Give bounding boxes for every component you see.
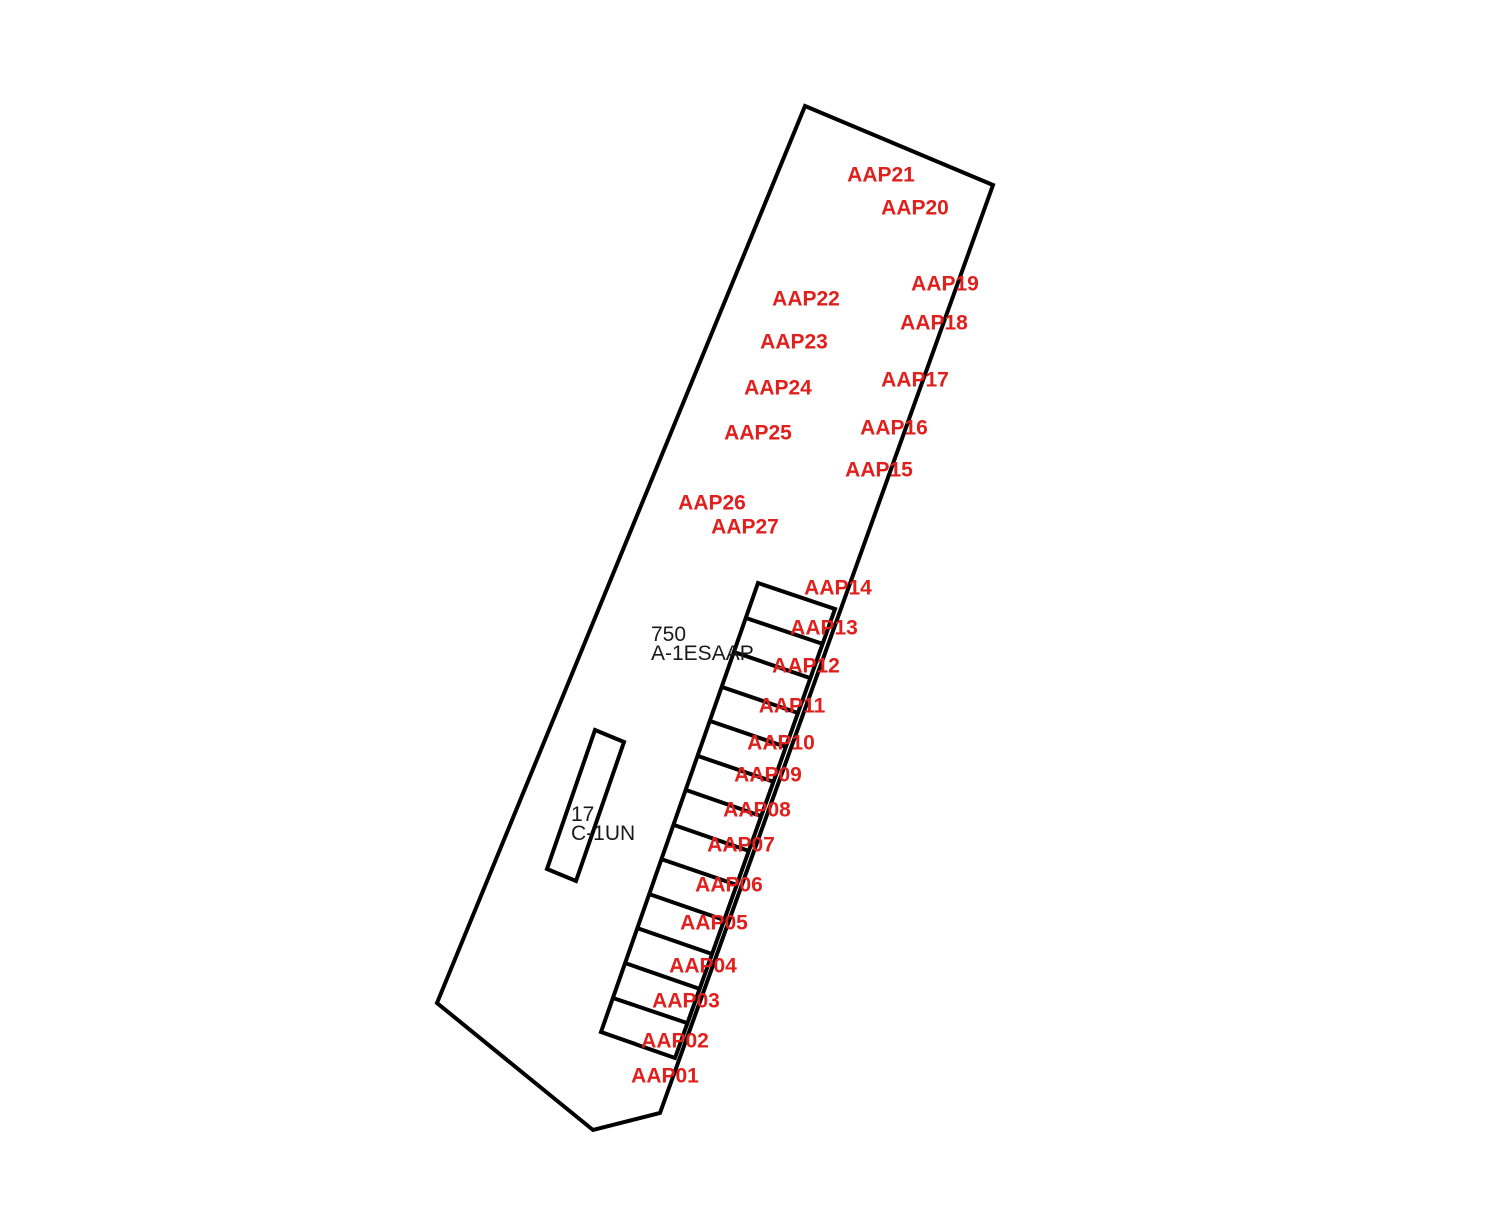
stall-label-aap27: AAP27 — [711, 517, 779, 538]
stall-label-aap07: AAP07 — [707, 835, 775, 856]
stall-label-aap15: AAP15 — [845, 460, 913, 481]
stall-label-aap03: AAP03 — [652, 991, 720, 1012]
stall-label-aap01: AAP01 — [631, 1066, 699, 1087]
stall-label-aap17: AAP17 — [881, 370, 949, 391]
stall-label-aap21: AAP21 — [847, 165, 915, 186]
stall-label-aap24: AAP24 — [744, 378, 812, 399]
stall-label-aap19: AAP19 — [911, 274, 979, 295]
stall-label-aap02: AAP02 — [641, 1031, 709, 1052]
stall-label-aap18: AAP18 — [900, 313, 968, 334]
stall-label-aap09: AAP09 — [734, 765, 802, 786]
parcel-label-750: 750 A-1ESAAP — [651, 625, 754, 663]
stall-label-aap13: AAP13 — [790, 618, 858, 639]
stall-label-aap11: AAP11 — [759, 696, 826, 717]
stall-label-aap14: AAP14 — [804, 578, 872, 599]
parcel-label-17: 17 C-1UN — [571, 805, 635, 843]
stall-label-aap06: AAP06 — [695, 875, 763, 896]
stall-label-aap08: AAP08 — [723, 800, 791, 821]
stall-label-aap26: AAP26 — [678, 493, 746, 514]
stall-label-aap10: AAP10 — [747, 733, 815, 754]
parcel-code: C-1UN — [571, 824, 635, 843]
stall-label-aap16: AAP16 — [860, 418, 928, 439]
stall-label-aap22: AAP22 — [772, 289, 840, 310]
stall-label-aap20: AAP20 — [881, 198, 949, 219]
stall-label-aap04: AAP04 — [669, 956, 737, 977]
site-plan-drawing — [0, 0, 1500, 1218]
stall-label-aap23: AAP23 — [760, 332, 828, 353]
stall-label-aap25: AAP25 — [724, 423, 792, 444]
stall-label-aap05: AAP05 — [680, 913, 748, 934]
stall-label-aap12: AAP12 — [772, 656, 840, 677]
parcel-code: A-1ESAAP — [651, 644, 754, 663]
site-plan-canvas: AAP01 AAP02 AAP03 AAP04 AAP05 AAP06 AAP0… — [0, 0, 1500, 1218]
